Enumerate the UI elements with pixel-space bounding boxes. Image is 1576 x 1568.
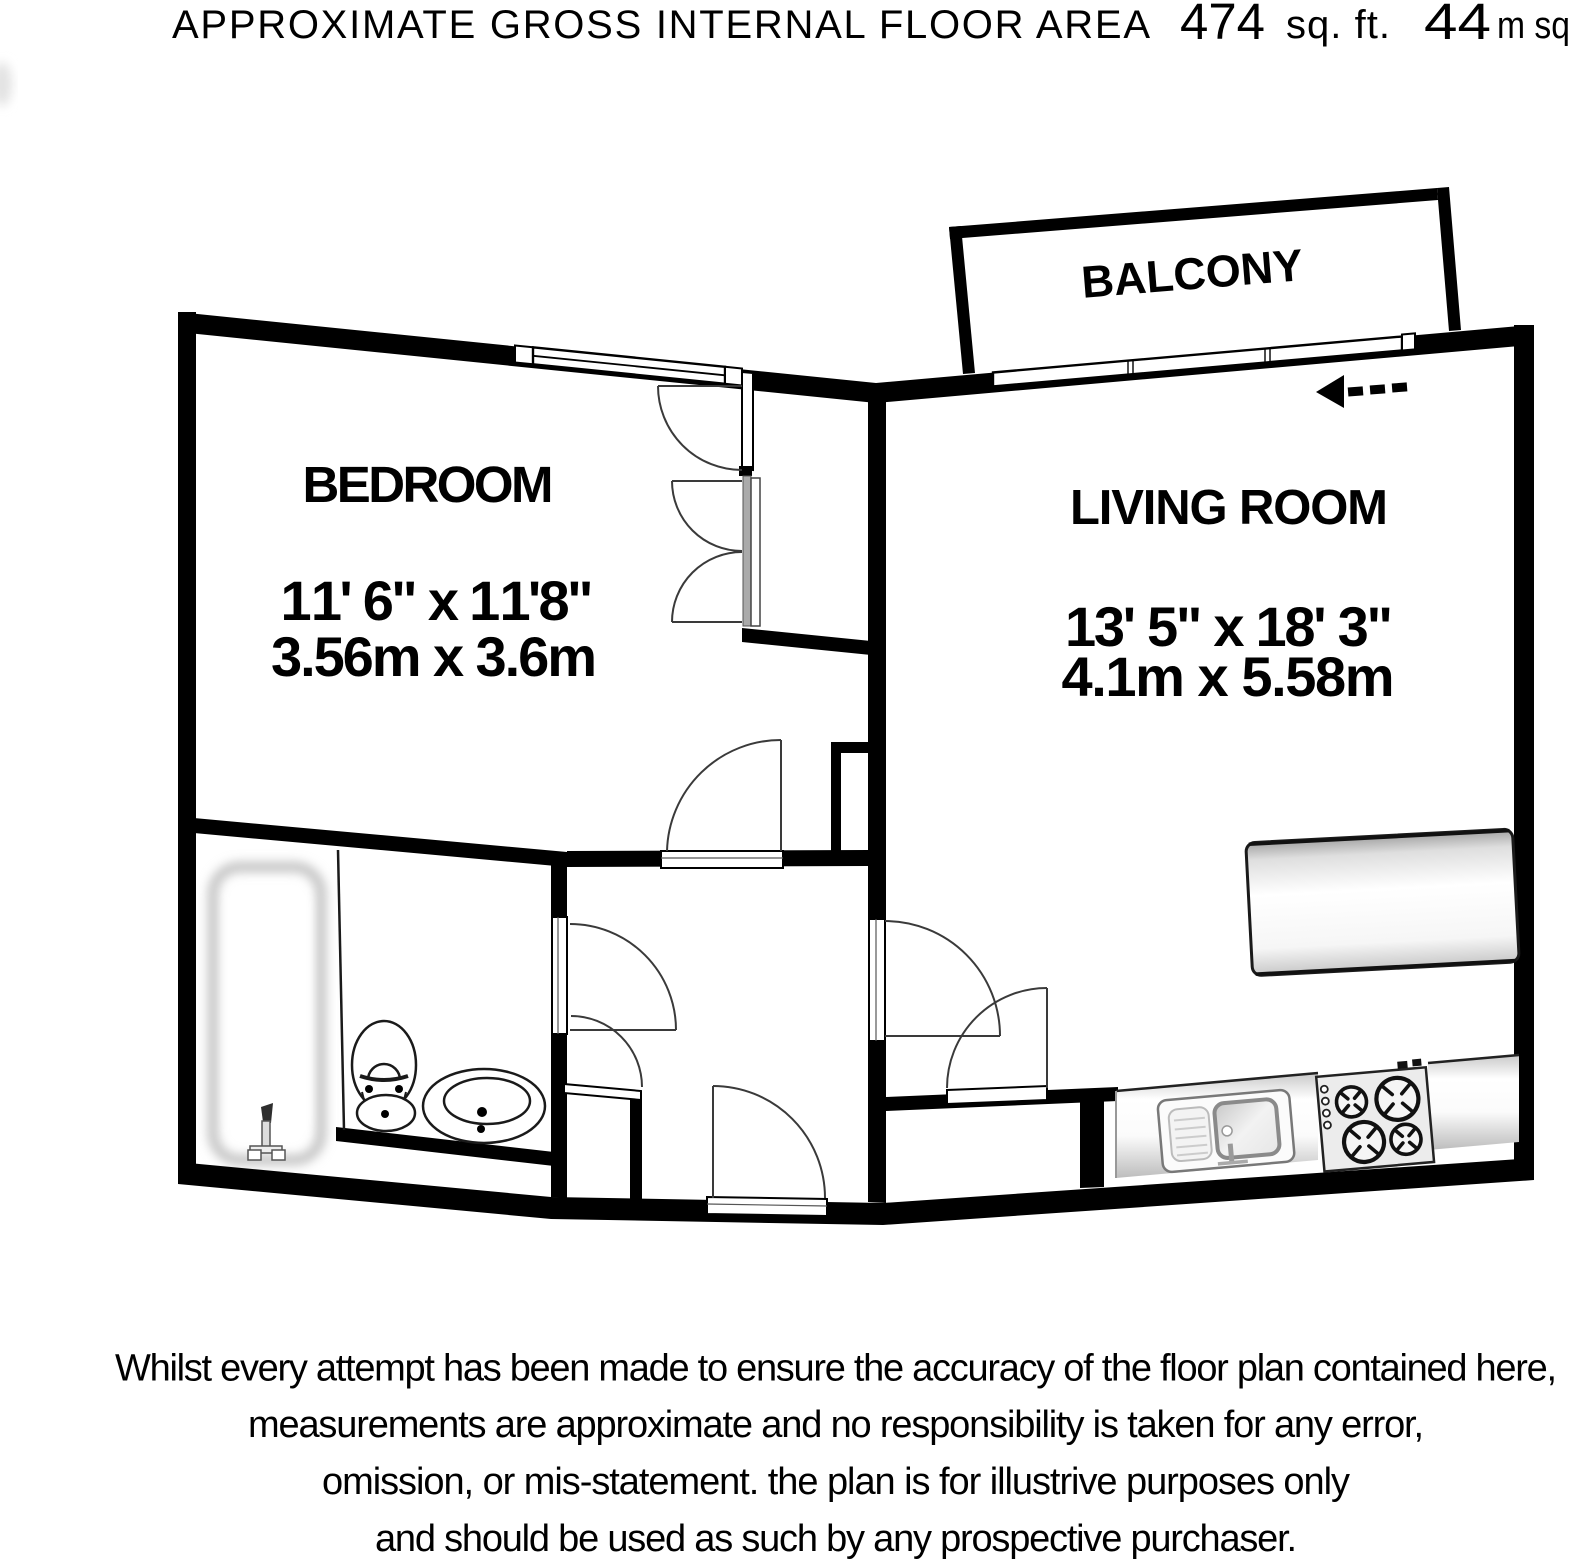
svg-text:and should be used as such by: and should be used as such by any prospe… <box>375 1518 1297 1560</box>
svg-text:LIVING ROOM: LIVING ROOM <box>1070 481 1388 535</box>
svg-text:474: 474 <box>1180 0 1265 50</box>
svg-text:APPROXIMATE GROSS INTERNAL FLO: APPROXIMATE GROSS INTERNAL FLOOR AREA <box>172 3 1150 47</box>
svg-text:sq. ft.: sq. ft. <box>1286 3 1390 47</box>
svg-text:Whilst every attempt has been: Whilst every attempt has been made to en… <box>115 1348 1557 1390</box>
svg-text:m sq: m sq <box>1497 5 1570 47</box>
svg-text:omission, or mis-statement. th: omission, or mis-statement. the plan is … <box>322 1461 1350 1503</box>
svg-text:measurements are approximate a: measurements are approximate and no resp… <box>248 1404 1424 1446</box>
svg-text:44: 44 <box>1424 0 1491 50</box>
svg-text:3.56m x 3.6m: 3.56m x 3.6m <box>271 625 597 688</box>
svg-text:1 1' 6" x 1 1'8": 1 1' 6" x 1 1'8" <box>281 569 594 632</box>
svg-text:4.1m x 5.58m: 4.1m x 5.58m <box>1062 645 1395 708</box>
svg-text:BEDROOM: BEDROOM <box>303 456 554 513</box>
